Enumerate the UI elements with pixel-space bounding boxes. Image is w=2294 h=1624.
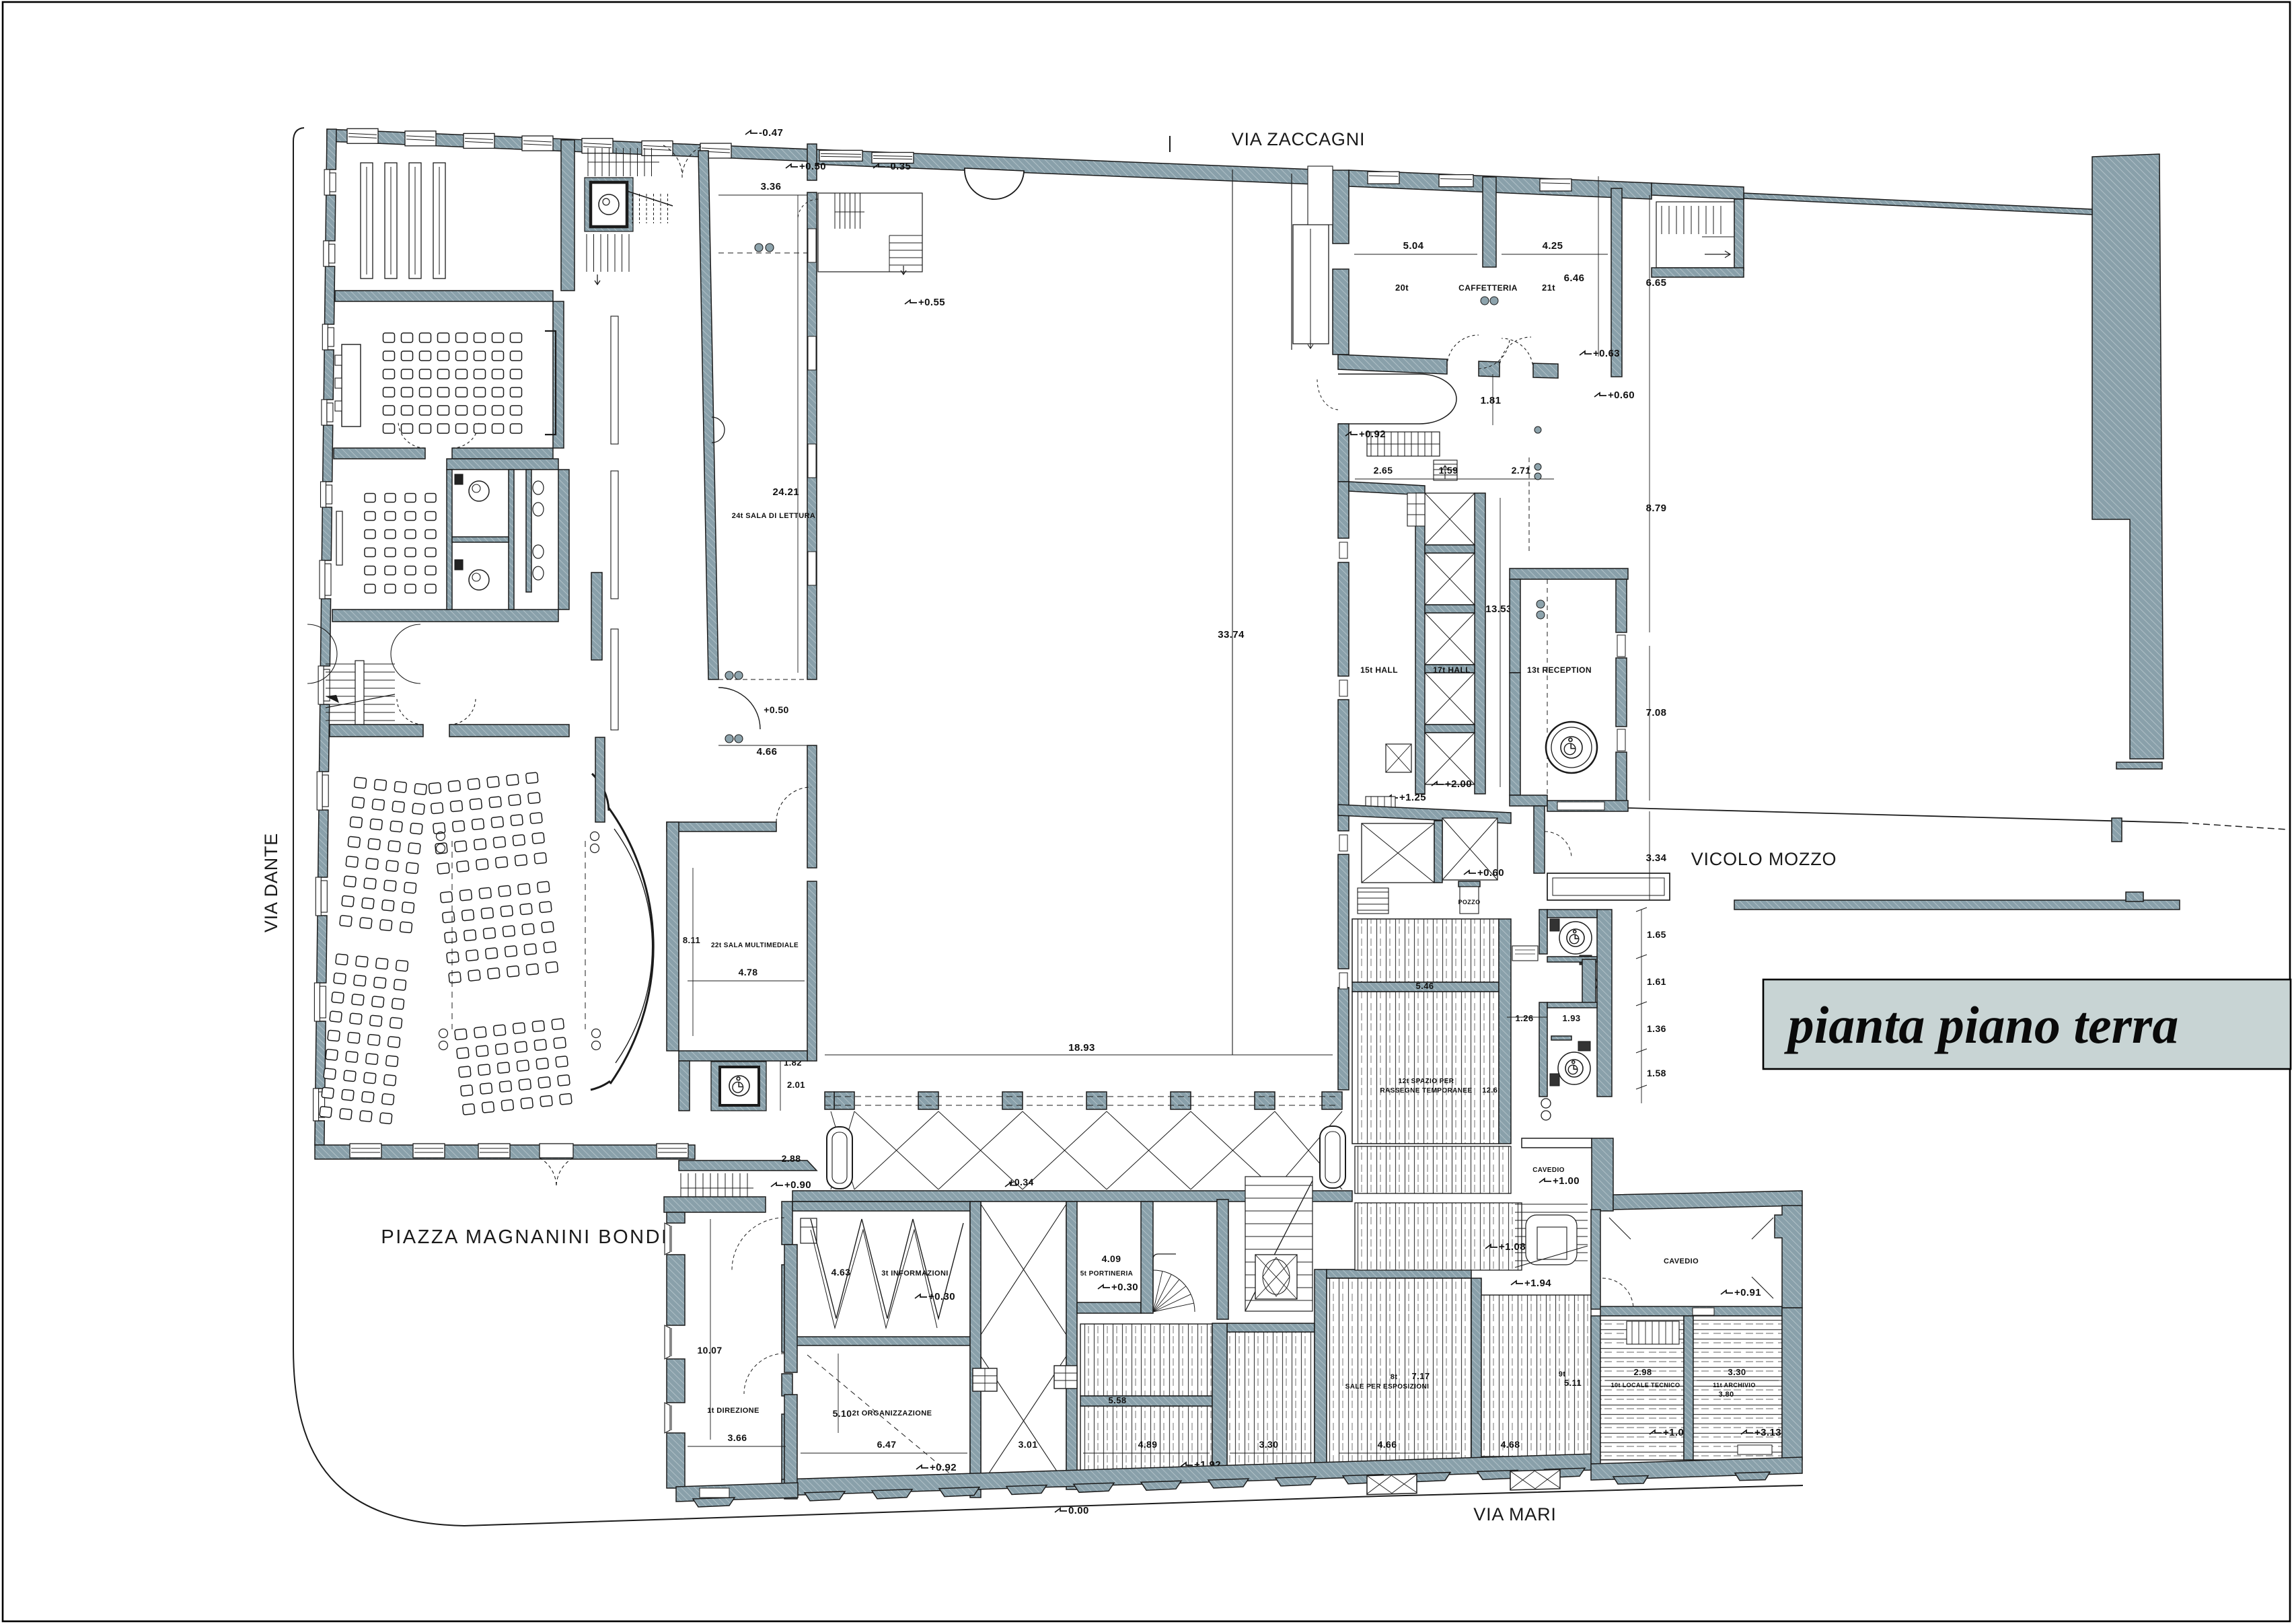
svg-text:8t: 8t bbox=[1391, 1373, 1398, 1381]
svg-text:3.01: 3.01 bbox=[1019, 1439, 1038, 1450]
svg-text:5t PORTINERIA: 5t PORTINERIA bbox=[1080, 1270, 1134, 1278]
svg-text:+0.60: +0.60 bbox=[1608, 390, 1635, 401]
svg-text:3.30: 3.30 bbox=[1259, 1439, 1279, 1450]
svg-text:4.63: 4.63 bbox=[831, 1267, 851, 1278]
svg-text:+1.00: +1.00 bbox=[1553, 1175, 1580, 1187]
svg-text:6.46: 6.46 bbox=[1564, 272, 1585, 284]
svg-text:VIA DANTE: VIA DANTE bbox=[261, 833, 281, 932]
svg-text:+0.30: +0.30 bbox=[1111, 1282, 1138, 1293]
svg-text:VIA ZACCAGNI: VIA ZACCAGNI bbox=[1232, 129, 1366, 149]
svg-text:+0.50: +0.50 bbox=[799, 161, 826, 172]
svg-text:+0.50: +0.50 bbox=[764, 704, 788, 715]
svg-text:21t: 21t bbox=[1542, 283, 1555, 293]
svg-text:2.65: 2.65 bbox=[1374, 465, 1393, 476]
svg-text:1.36: 1.36 bbox=[1647, 1023, 1666, 1034]
svg-text:22t SALA MULTIMEDIALE: 22t SALA MULTIMEDIALE bbox=[711, 942, 799, 949]
svg-text:+0.63: +0.63 bbox=[1593, 348, 1620, 359]
svg-text:4.66: 4.66 bbox=[1378, 1439, 1397, 1450]
svg-text:5.10: 5.10 bbox=[833, 1408, 852, 1419]
svg-text:4.68: 4.68 bbox=[1501, 1439, 1520, 1450]
svg-text:1.61: 1.61 bbox=[1647, 976, 1666, 987]
svg-text:3.80: 3.80 bbox=[1718, 1391, 1734, 1399]
svg-text:CAVEDIO: CAVEDIO bbox=[1532, 1167, 1565, 1174]
svg-text:2.71: 2.71 bbox=[1512, 465, 1531, 476]
svg-text:RASSEGNE TEMPORANEE: RASSEGNE TEMPORANEE bbox=[1380, 1087, 1472, 1095]
svg-text:VIA MARI: VIA MARI bbox=[1473, 1504, 1556, 1524]
svg-text:1.93: 1.93 bbox=[1563, 1013, 1581, 1023]
svg-text:+1.08: +1.08 bbox=[1499, 1241, 1526, 1253]
svg-text:pianta piano terra: pianta piano terra bbox=[1784, 996, 2179, 1054]
svg-text:6.47: 6.47 bbox=[877, 1439, 897, 1450]
svg-text:15t HALL: 15t HALL bbox=[1360, 665, 1398, 675]
svg-text:+0.30: +0.30 bbox=[928, 1291, 955, 1302]
svg-text:6.65: 6.65 bbox=[1646, 277, 1667, 289]
svg-text:-0.35: -0.35 bbox=[887, 161, 911, 172]
svg-text:+3.13: +3.13 bbox=[1754, 1427, 1781, 1438]
svg-text:4.25: 4.25 bbox=[1543, 240, 1563, 252]
svg-text:+2.00: +2.00 bbox=[1445, 778, 1472, 790]
svg-text:+1.25: +1.25 bbox=[1399, 792, 1426, 803]
svg-text:8.79: 8.79 bbox=[1646, 503, 1667, 514]
svg-text:13t RECEPTION: 13t RECEPTION bbox=[1527, 665, 1592, 675]
svg-text:24t SALA DI LETTURA: 24t SALA DI LETTURA bbox=[732, 512, 816, 520]
svg-text:+0.92: +0.92 bbox=[1359, 429, 1386, 440]
svg-text:3.66: 3.66 bbox=[728, 1432, 747, 1443]
svg-text:7.17: 7.17 bbox=[1412, 1371, 1430, 1381]
svg-text:2t ORGANIZZAZIONE: 2t ORGANIZZAZIONE bbox=[852, 1409, 932, 1417]
svg-text:20t: 20t bbox=[1395, 283, 1409, 293]
svg-text:5.11: 5.11 bbox=[1564, 1378, 1582, 1388]
svg-text:1.58: 1.58 bbox=[1647, 1068, 1666, 1078]
svg-text:13.53: 13.53 bbox=[1485, 603, 1512, 615]
svg-text:11t ARCHIVIO: 11t ARCHIVIO bbox=[1713, 1382, 1755, 1389]
svg-text:8.11: 8.11 bbox=[683, 935, 700, 945]
svg-text:+0.91: +0.91 bbox=[1734, 1287, 1761, 1298]
svg-text:-0.47: -0.47 bbox=[759, 127, 783, 139]
svg-text:PIAZZA MAGNANINI BONDI: PIAZZA MAGNANINI BONDI bbox=[381, 1226, 668, 1248]
svg-text:10t LOCALE TECNICO: 10t LOCALE TECNICO bbox=[1611, 1382, 1680, 1389]
svg-text:CAFFETTERIA: CAFFETTERIA bbox=[1458, 283, 1518, 293]
svg-text:1.65: 1.65 bbox=[1647, 929, 1666, 940]
svg-text:CAVEDIO: CAVEDIO bbox=[1664, 1257, 1699, 1265]
svg-text:12t SPAZIO PER: 12t SPAZIO PER bbox=[1399, 1078, 1454, 1085]
svg-text:4.66: 4.66 bbox=[757, 746, 778, 758]
svg-text:17t HALL: 17t HALL bbox=[1433, 665, 1471, 675]
svg-text:3.30: 3.30 bbox=[1728, 1367, 1746, 1377]
svg-text:4.78: 4.78 bbox=[739, 967, 758, 977]
svg-text:1.81: 1.81 bbox=[1481, 395, 1502, 406]
svg-text:1.59: 1.59 bbox=[1439, 465, 1458, 476]
svg-text:3.34: 3.34 bbox=[1646, 852, 1667, 864]
svg-text:VICOLO MOZZO: VICOLO MOZZO bbox=[1691, 849, 1837, 869]
svg-text:4.09: 4.09 bbox=[1102, 1253, 1121, 1264]
svg-text:33.74: 33.74 bbox=[1218, 629, 1245, 640]
svg-text:18.93: 18.93 bbox=[1068, 1042, 1095, 1054]
svg-text:1t DIREZIONE: 1t DIREZIONE bbox=[707, 1407, 760, 1415]
svg-text:24.21: 24.21 bbox=[772, 486, 799, 498]
svg-text:2.88: 2.88 bbox=[782, 1153, 801, 1164]
svg-text:+0.55: +0.55 bbox=[918, 297, 945, 308]
svg-text:5.58: 5.58 bbox=[1109, 1395, 1127, 1405]
svg-text:2.01: 2.01 bbox=[787, 1080, 805, 1090]
svg-text:5.46: 5.46 bbox=[1416, 981, 1434, 991]
svg-text:5.04: 5.04 bbox=[1403, 240, 1424, 252]
svg-text:+0.92: +0.92 bbox=[930, 1462, 957, 1473]
svg-text:0.00: 0.00 bbox=[1068, 1505, 1089, 1516]
svg-text:10.07: 10.07 bbox=[697, 1345, 722, 1356]
svg-text:3.36: 3.36 bbox=[761, 181, 782, 192]
svg-text:+0.90: +0.90 bbox=[784, 1179, 811, 1191]
svg-text:SALE PER ESPOSIZIONI: SALE PER ESPOSIZIONI bbox=[1345, 1383, 1430, 1391]
svg-text:1.26: 1.26 bbox=[1516, 1013, 1534, 1023]
svg-text:2.98: 2.98 bbox=[1634, 1367, 1652, 1377]
svg-text:POZZO: POZZO bbox=[1458, 899, 1481, 906]
svg-text:+1.94: +1.94 bbox=[1524, 1278, 1551, 1289]
svg-text:3t INFORMAZIONI: 3t INFORMAZIONI bbox=[881, 1269, 949, 1278]
svg-text:7.08: 7.08 bbox=[1646, 707, 1667, 718]
svg-text:4.89: 4.89 bbox=[1138, 1439, 1158, 1450]
svg-text:+0.60: +0.60 bbox=[1477, 867, 1504, 879]
